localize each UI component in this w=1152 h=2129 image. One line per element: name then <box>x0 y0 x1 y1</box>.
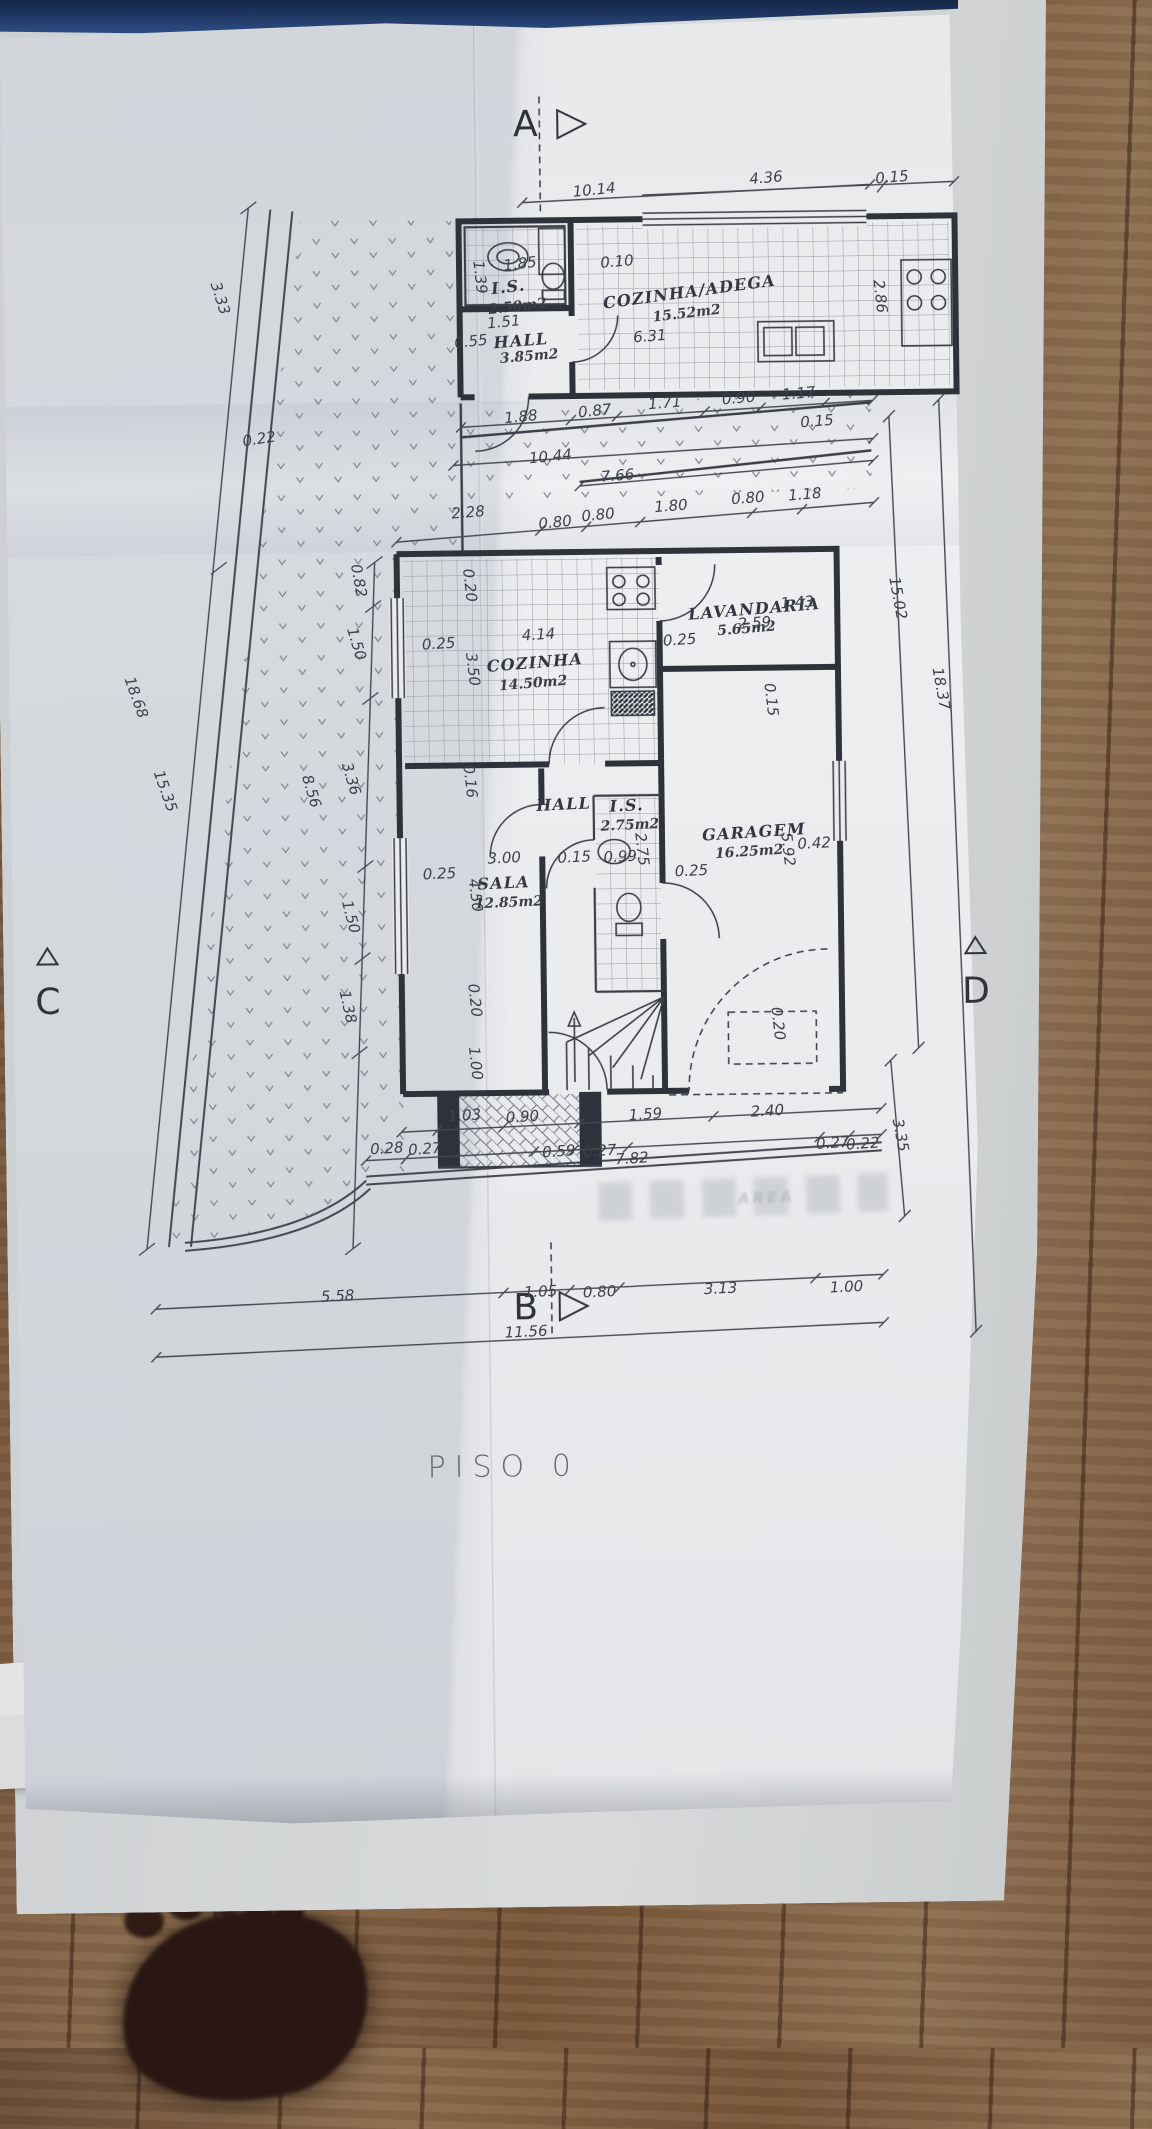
dim-3-13: 3.13 <box>703 1279 737 1299</box>
dim-1-50-b: 1.50 <box>338 898 364 935</box>
dim-0-15-c: 0.15 <box>760 682 782 717</box>
room-is1: I.S. <box>490 275 526 298</box>
dim-0-25-a: 0.25 <box>421 634 455 654</box>
marker-c: C <box>35 982 61 1023</box>
area-garagem: 16.25m2 <box>715 842 784 862</box>
dim-0-10: 0.10 <box>600 251 635 272</box>
dim-0-55: 0.55 <box>453 331 488 352</box>
dim-1-50-a: 1.50 <box>343 625 370 662</box>
dim-2-86: 2.86 <box>870 279 892 314</box>
dim-18-37: 18.37 <box>928 666 954 712</box>
dim-3-35: 3.35 <box>889 1117 913 1153</box>
dim-0-16: 0.16 <box>459 764 481 799</box>
dim-0-80-d: 0.80 <box>582 1282 616 1302</box>
dim-4-36: 4.36 <box>749 167 784 188</box>
room-cozinha: COZINHA <box>486 649 584 676</box>
dim-2-59: 2.59 <box>737 613 771 633</box>
dim-2-28: 2.28 <box>451 502 486 523</box>
dim-0-15-d: 0.15 <box>557 847 591 867</box>
dim-0-82: 0.82 <box>347 563 371 599</box>
dim-0-59: 0.59 <box>542 1141 576 1161</box>
dim-7-66: 7.66 <box>600 465 635 486</box>
dim-5-92: 5.92 <box>777 832 799 867</box>
dim-0-80-b: 0.80 <box>581 504 616 525</box>
dim-7-82: 7.82 <box>615 1148 649 1168</box>
dim-1-17: 1.17 <box>781 383 816 404</box>
dim-0-22-b: 0.22 <box>846 1133 880 1153</box>
dim-0-87: 0.87 <box>577 400 612 421</box>
dim-1-39: 1.39 <box>469 260 491 295</box>
dim-3-33: 3.33 <box>207 280 234 317</box>
dim-1-71: 1.71 <box>647 393 682 414</box>
marker-d: D <box>962 970 990 1011</box>
dim-0-25-d: 0.25 <box>422 864 456 884</box>
dim-0-20-c: 0.20 <box>767 1006 789 1041</box>
floorplan-drawing: ABCDPISO 0AREA10.144.360.150.101.851.391… <box>0 0 1152 2059</box>
area-cozinha: 14.50m2 <box>498 673 567 695</box>
dim-1-05: 1.05 <box>523 1282 557 1302</box>
dim-10-14: 10.14 <box>572 179 617 201</box>
dim-3-36: 3.36 <box>338 760 365 797</box>
room-sala: SALA <box>477 872 530 893</box>
dim-0-20-b: 0.20 <box>464 983 486 1018</box>
floor-title: PISO 0 <box>427 1449 580 1486</box>
dim-18-68: 18.68 <box>121 674 152 721</box>
dim-15-35: 15.35 <box>150 768 181 815</box>
dim-1-88: 1.88 <box>503 406 538 427</box>
dim-0-22: 0.22 <box>241 427 277 450</box>
dim-0-25-b: 0.25 <box>662 630 696 650</box>
marker-a: A <box>513 104 538 145</box>
dim-3-00: 3.00 <box>487 848 521 868</box>
dim-5-58: 5.58 <box>320 1286 354 1306</box>
dim-6-31: 6.31 <box>633 326 668 347</box>
photo-of-floorplan: { "drawing": { "title": "PISO 0", "secti… <box>0 0 1152 2048</box>
dim-1-43: 1.43 <box>780 592 814 612</box>
dim-3-50: 3.50 <box>462 652 484 687</box>
dim-1-38: 1.38 <box>336 989 361 1026</box>
area-is2: 2.75m2 <box>600 816 659 835</box>
dim-0-27-b: 0.27 <box>583 1141 617 1161</box>
drawing-labels: ABCDPISO 0AREA10.144.360.150.101.851.391… <box>0 0 1152 2059</box>
dim-0-20-a: 0.20 <box>459 568 481 603</box>
dim-1-00-b: 1.00 <box>829 1277 863 1297</box>
dim-0-28: 0.28 <box>370 1138 404 1158</box>
dim-0-90-b: 0.90 <box>505 1107 539 1127</box>
dim-1-03: 1.03 <box>447 1105 481 1125</box>
dim-0-99: 0.99 <box>603 847 637 867</box>
dim-4-50: 4.50 <box>465 878 487 913</box>
dim-0-15-b: 0.15 <box>800 411 835 432</box>
dim-0-90: 0.90 <box>721 388 756 409</box>
dim-1-59: 1.59 <box>628 1104 662 1124</box>
dim-0-15-a: 0.15 <box>875 167 910 188</box>
dim-11-56: 11.56 <box>504 1322 548 1342</box>
dim-4-14: 4.14 <box>521 624 555 644</box>
dim-2-40: 2.40 <box>750 1101 784 1121</box>
dim-1-80: 1.80 <box>654 495 689 516</box>
dim-1-18: 1.18 <box>787 484 822 505</box>
ghost-stamp: AREA <box>738 1187 796 1208</box>
dim-1-00-a: 1.00 <box>465 1046 487 1081</box>
dim-15-02: 15.02 <box>885 575 911 621</box>
dim-0-25-c: 0.25 <box>674 861 708 881</box>
area-hall1: 3.85m2 <box>499 346 559 367</box>
area-cozadega: 15.52m2 <box>652 302 722 326</box>
room-is2: I.S. <box>609 795 644 816</box>
room-hall2: HALL <box>536 793 592 815</box>
dim-10-44: 10.44 <box>528 445 573 467</box>
dim-0-27-a: 0.27 <box>408 1139 442 1159</box>
dim-0-80-c: 0.80 <box>730 488 765 509</box>
dim-0-80-a: 0.80 <box>538 512 573 533</box>
dim-8-56: 8.56 <box>298 773 325 810</box>
dim-1-85: 1.85 <box>502 253 537 275</box>
area-is1: 2.50m2 <box>487 295 547 318</box>
dim-0-42: 0.42 <box>797 833 831 853</box>
